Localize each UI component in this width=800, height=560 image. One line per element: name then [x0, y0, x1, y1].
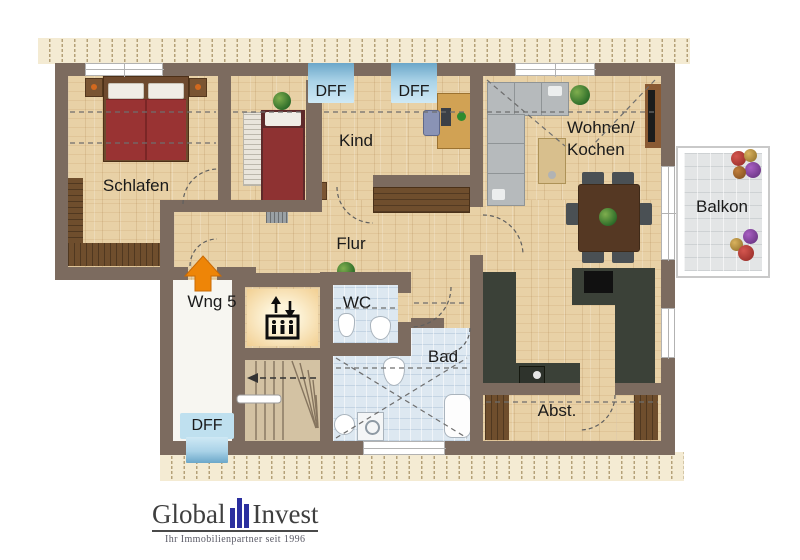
pillow: [265, 112, 301, 126]
stairwell-floor: [245, 360, 320, 441]
room-label-abst: Abst.: [538, 401, 577, 421]
wall-flur-north: [160, 200, 322, 212]
wall-stairs-north: [245, 348, 320, 360]
wall-wc-east: [398, 322, 411, 343]
storage-shelf: [485, 395, 509, 440]
nightstand: [189, 78, 207, 97]
kind-shelf: [243, 112, 263, 186]
kind-bed: [261, 110, 305, 202]
window-bad: [363, 441, 445, 455]
wall-wohnen-west-upper: [470, 76, 483, 207]
cooktop: [584, 271, 613, 293]
company-logo: Global Invest Ihr Immobilienpartner seit…: [152, 498, 318, 545]
plant: [599, 208, 617, 226]
floorplan-canvas: Schlafen Kind Flur Wohnen/ Kochen Balkon…: [0, 0, 800, 560]
bed-cover: [106, 99, 186, 160]
flower-box-top: [731, 149, 765, 195]
logo-word-invest: Invest: [253, 501, 319, 528]
wall-elevator-north: [243, 273, 333, 287]
wall-bath-west: [320, 272, 333, 441]
wall-wc-east-stub: [398, 285, 411, 293]
pillow: [548, 86, 562, 96]
shower: [444, 394, 471, 438]
dff-label-top-right: DFF: [398, 83, 429, 101]
roof-overhang-top: [38, 38, 690, 64]
wall-kind-south: [373, 175, 483, 187]
elevator-cell: [247, 289, 318, 346]
double-bed: [103, 76, 189, 162]
window-schlafen: [85, 63, 163, 76]
dff-label-bottom: DFF: [191, 417, 222, 435]
room-label-bad: Bad: [428, 347, 458, 367]
tv: [648, 90, 655, 142]
washing-machine: [357, 412, 384, 441]
logo-divider: [152, 530, 318, 532]
kitchen-counter: [615, 305, 655, 387]
room-label-balkon: Balkon: [696, 197, 748, 217]
room-label-wc: WC: [343, 293, 371, 313]
sideboard: [373, 187, 470, 213]
room-label-schlafen: Schlafen: [103, 176, 169, 196]
plant: [273, 92, 291, 110]
wall-bad-north: [411, 318, 444, 328]
sofa: [487, 114, 525, 206]
wall-abst-north-right: [615, 383, 661, 395]
dff-label-top-left: DFF: [315, 83, 346, 101]
logo-tagline: Ihr Immobilienpartner seit 1996: [152, 534, 318, 545]
logo-building-bars-icon: [229, 498, 250, 528]
wall-schlafen-kind: [218, 76, 231, 204]
tv-board: [645, 84, 661, 148]
bed-cover: [263, 128, 303, 200]
wardrobe: [68, 178, 83, 244]
logo-wordmark: Global Invest: [152, 498, 318, 528]
wall-left-upper: [55, 63, 68, 280]
balcony-door: [661, 166, 675, 260]
monitor: [441, 108, 451, 126]
wall-wohnen-west-lower: [470, 255, 483, 441]
bad-sink: [334, 414, 355, 435]
room-label-kind: Kind: [339, 131, 373, 151]
desk-chair: [423, 110, 440, 136]
wardrobe: [68, 243, 160, 266]
wall-wc-south: [320, 343, 411, 356]
wall-wc-north: [320, 272, 411, 285]
pillow: [492, 189, 505, 200]
storage-shelf: [634, 395, 658, 440]
nightstand: [85, 78, 103, 97]
wall-abst-north-left: [483, 383, 580, 395]
plant: [570, 85, 590, 105]
room-label-wng5: Wng 5: [187, 292, 236, 312]
kitchen-counter: [483, 272, 516, 387]
dining-chair: [639, 203, 652, 225]
room-label-flur: Flur: [336, 234, 365, 254]
pillow: [148, 83, 184, 99]
flower-box-bottom: [729, 229, 763, 273]
radiator: [266, 212, 288, 223]
window-kochen: [661, 308, 675, 358]
roof-overhang-bottom: [160, 452, 684, 481]
window-wohnen: [515, 63, 595, 76]
desk: [437, 93, 471, 149]
coffee-table: [538, 138, 566, 184]
logo-word-global: Global: [152, 501, 226, 528]
pillow: [108, 83, 144, 99]
wall-left-lower: [160, 280, 173, 455]
roof-window-dff: [186, 437, 228, 463]
wall-vestibule-left: [160, 212, 174, 267]
desk-lamp: [457, 112, 466, 121]
wall-schlafen-bottom: [55, 267, 188, 280]
room-label-wohnen-kochen: Wohnen/ Kochen: [567, 117, 635, 161]
sofa: [487, 82, 569, 116]
